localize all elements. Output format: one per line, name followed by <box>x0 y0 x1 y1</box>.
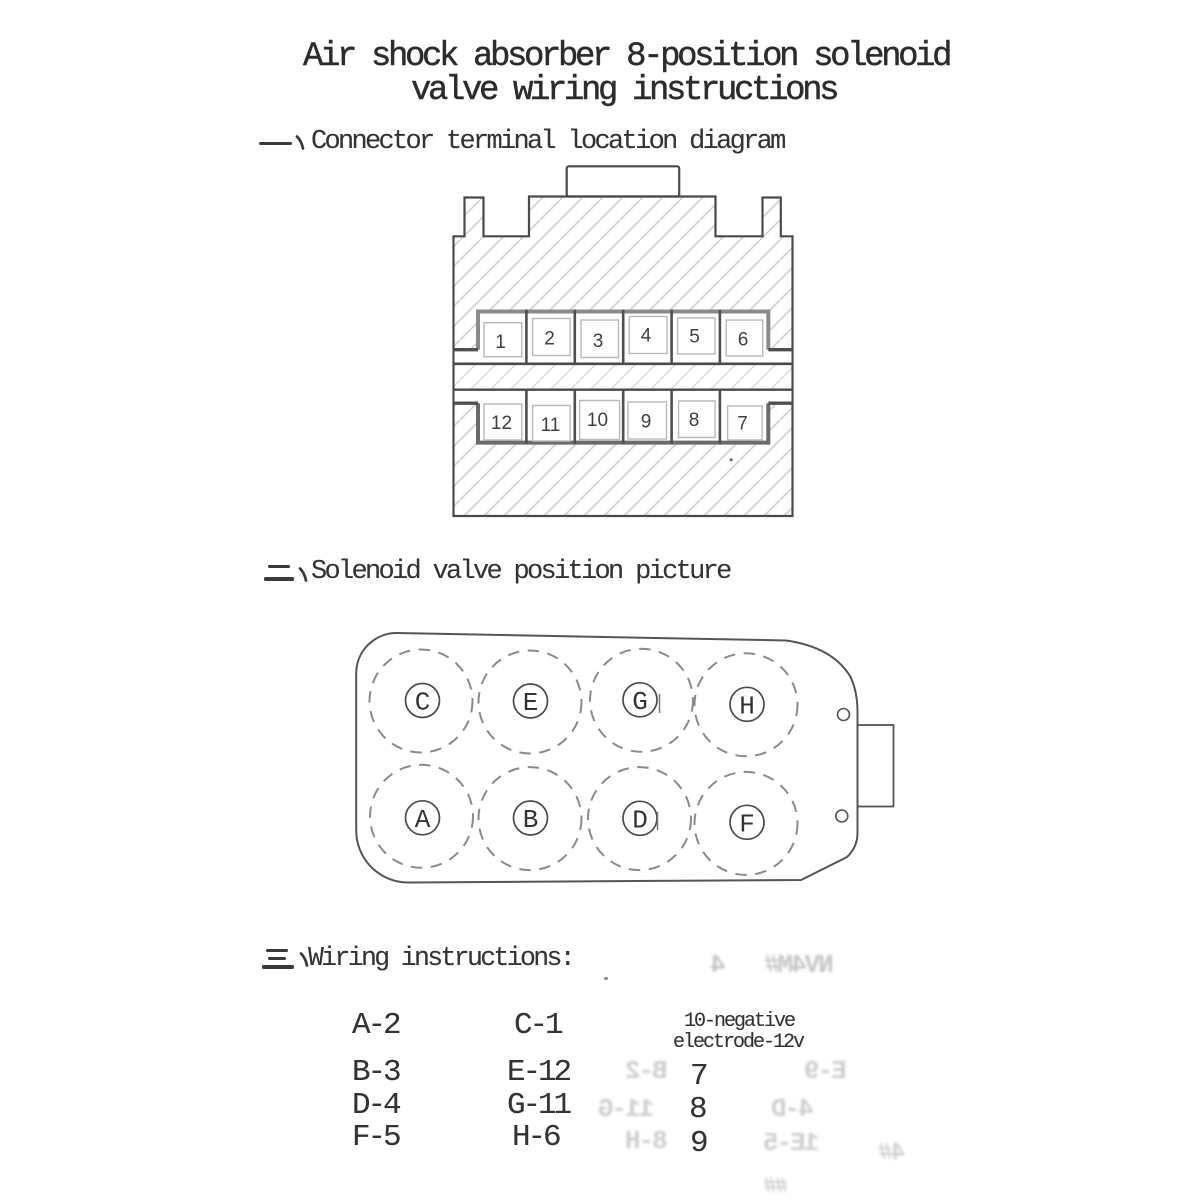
svg-text:A: A <box>415 805 431 835</box>
svg-text:F: F <box>739 809 755 839</box>
svg-text:D: D <box>632 805 648 835</box>
svg-text:6: 6 <box>738 330 749 351</box>
svg-text:1: 1 <box>495 332 506 353</box>
svg-text:C: C <box>415 688 431 718</box>
svg-text:H: H <box>739 691 755 721</box>
svg-text:8: 8 <box>689 410 700 431</box>
svg-text:G: G <box>632 687 648 717</box>
svg-text:9: 9 <box>641 412 652 433</box>
svg-text:4: 4 <box>641 326 652 347</box>
svg-text:5: 5 <box>689 327 700 348</box>
svg-text:3: 3 <box>593 331 604 352</box>
svg-text:10: 10 <box>587 410 608 431</box>
svg-text:11: 11 <box>541 415 561 436</box>
svg-text:2: 2 <box>544 329 555 350</box>
svg-text:E: E <box>523 688 539 718</box>
svg-text:B: B <box>523 805 539 835</box>
svg-text:7: 7 <box>737 414 748 435</box>
svg-text:12: 12 <box>491 413 512 434</box>
